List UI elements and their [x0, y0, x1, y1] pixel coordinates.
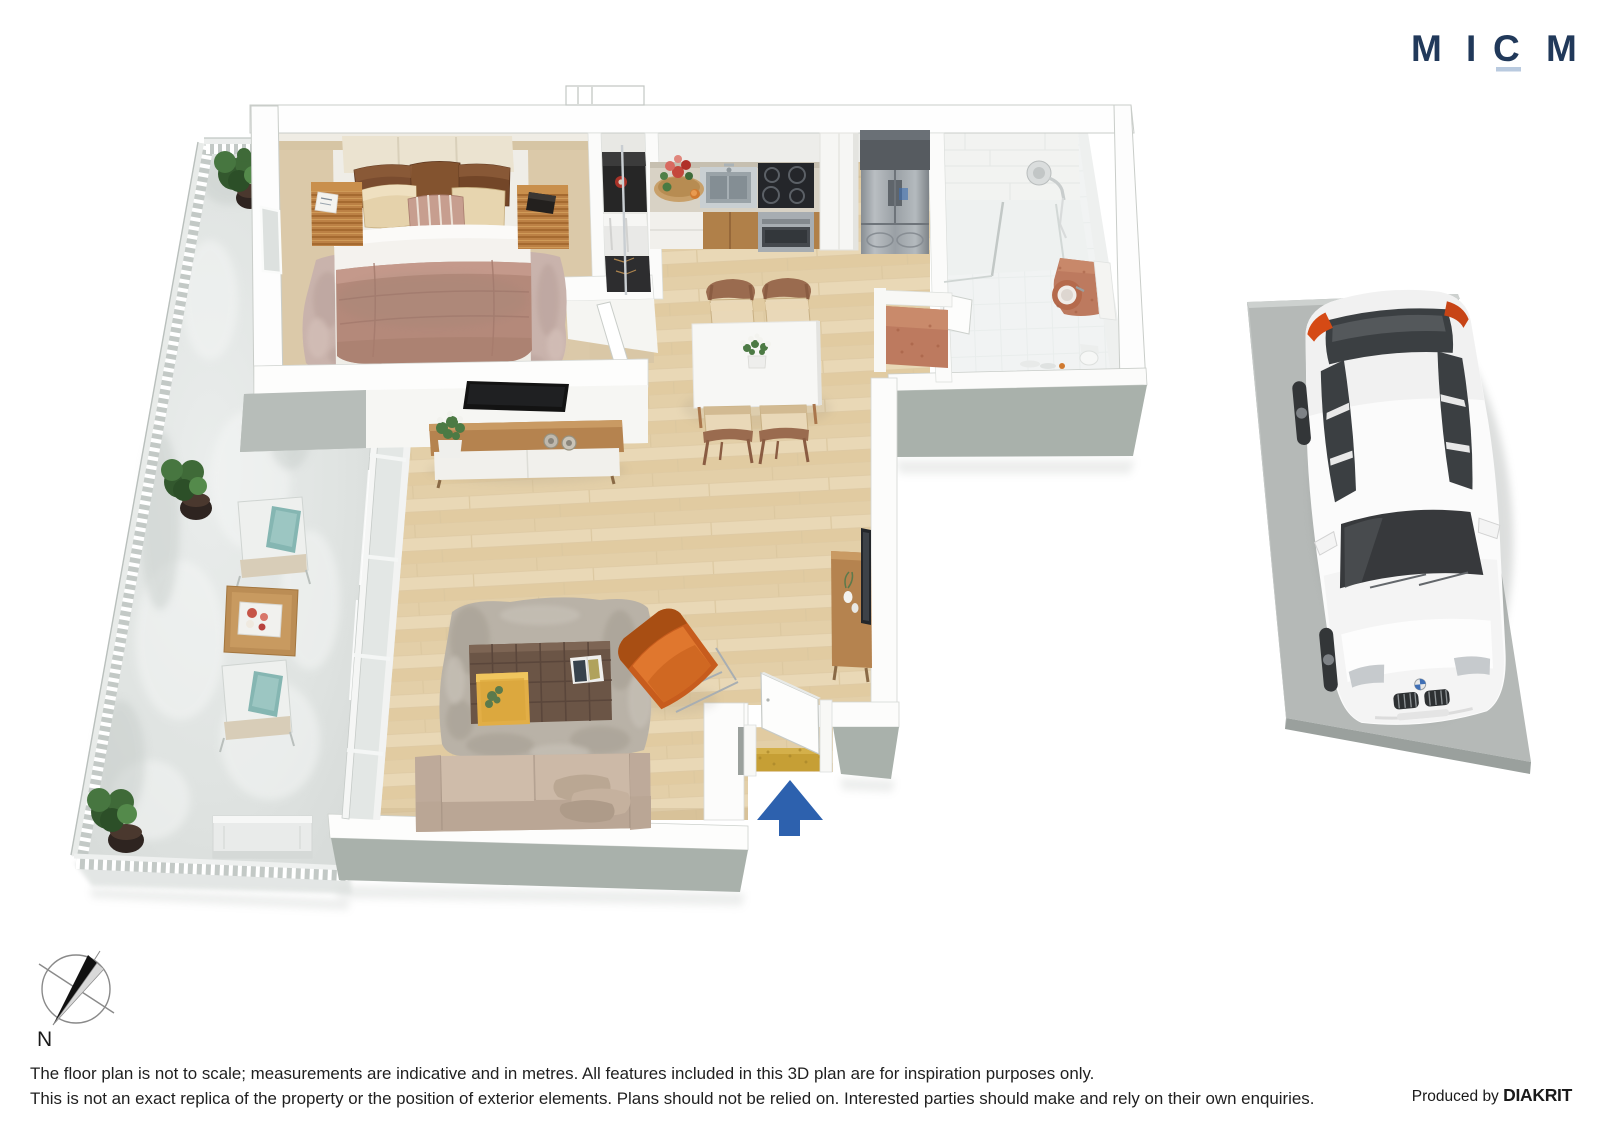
svg-text:Produced by DIAKRIT: Produced by DIAKRIT	[1412, 1085, 1573, 1105]
svg-text:The floor plan is not to scale: The floor plan is not to scale; measurem…	[30, 1064, 1094, 1083]
svg-text:M: M	[1546, 28, 1577, 69]
svg-text:M: M	[1411, 28, 1442, 69]
svg-text:C: C	[1493, 28, 1520, 69]
svg-text:This is not an exact replica o: This is not an exact replica of the prop…	[30, 1089, 1314, 1108]
svg-text:N: N	[37, 1028, 52, 1051]
svg-text:I: I	[1466, 28, 1476, 69]
